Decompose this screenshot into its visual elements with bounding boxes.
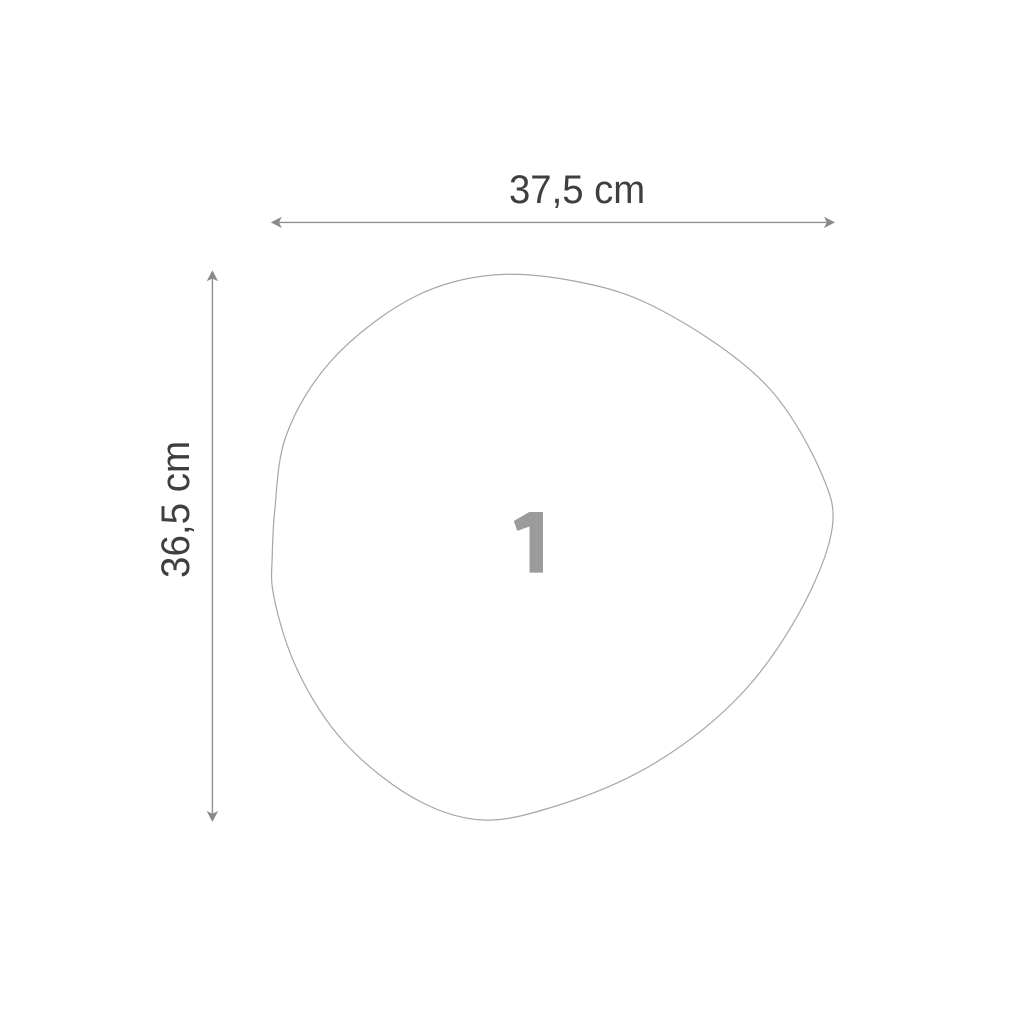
svg-text:36,5 cm: 36,5 cm [154,441,198,578]
svg-text:37,5 cm: 37,5 cm [509,168,645,212]
